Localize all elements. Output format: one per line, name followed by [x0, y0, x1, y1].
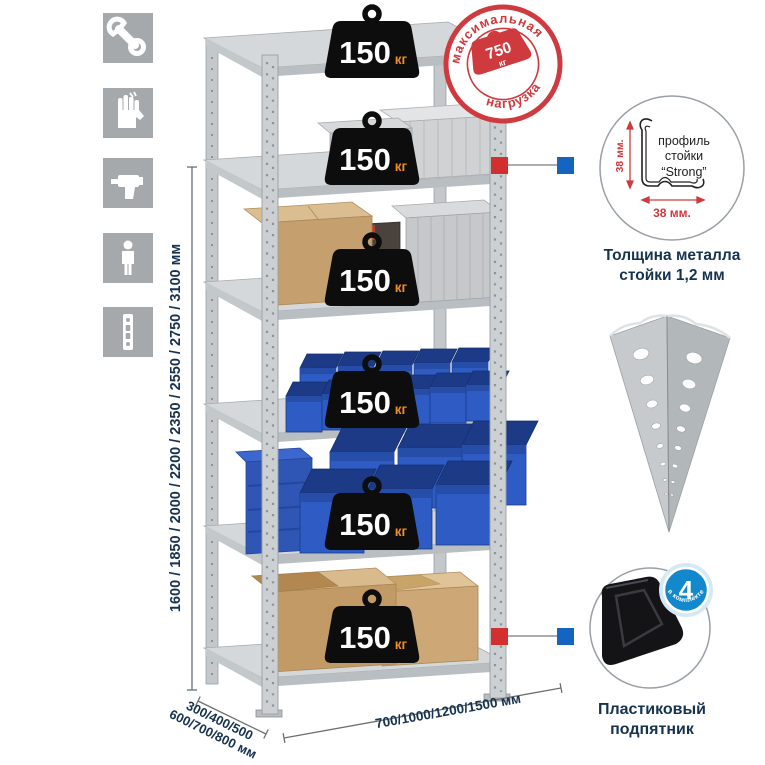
foot-caption-line2: подпятник [552, 720, 752, 740]
foot-caption-line1: Пластиковый [552, 700, 752, 720]
profile-detail-caption: Толщина металла стойки 1,2 мм [572, 246, 765, 286]
product-illustration: 150 кг [0, 0, 765, 765]
profile-dim-vertical-label: 38 мм. [614, 139, 626, 172]
connector-red-square-bottom [491, 628, 508, 645]
plastic-foot-caption: Пластиковый подпятник [552, 700, 752, 741]
front-left-post [262, 55, 278, 714]
profile-label-line3: “Strong” [661, 165, 706, 179]
profile-dim-horizontal-label: 38 мм. [653, 206, 691, 220]
profile-callout-connector [491, 157, 574, 174]
aluminum-case [406, 212, 500, 303]
front-right-post [490, 40, 506, 698]
connector-blue-square-bottom [557, 628, 574, 645]
quantity-badge: 4 в комплекте [661, 565, 711, 615]
corner-post-image [610, 316, 730, 532]
height-dimension-line [187, 167, 197, 690]
profile-label-line1: профиль [658, 134, 710, 148]
profile-caption-line2: стойки 1,2 мм [572, 266, 765, 286]
rack-illustration-svg: 150 кг [0, 0, 765, 765]
connector-blue-square-top [557, 157, 574, 174]
connector-red-square-top [491, 157, 508, 174]
height-dimension-label: 1600 / 1850 / 2000 / 2200 / 2350 / 2550 … [168, 244, 184, 612]
shelf-load-badges [325, 7, 419, 663]
profile-detail-circle: 38 мм. 38 мм. профиль стойки “Strong” [600, 96, 744, 240]
profile-caption-line1: Толщина металла [572, 246, 765, 266]
profile-label-line2: стойки [665, 149, 703, 163]
foot-callout-connector [491, 628, 574, 645]
